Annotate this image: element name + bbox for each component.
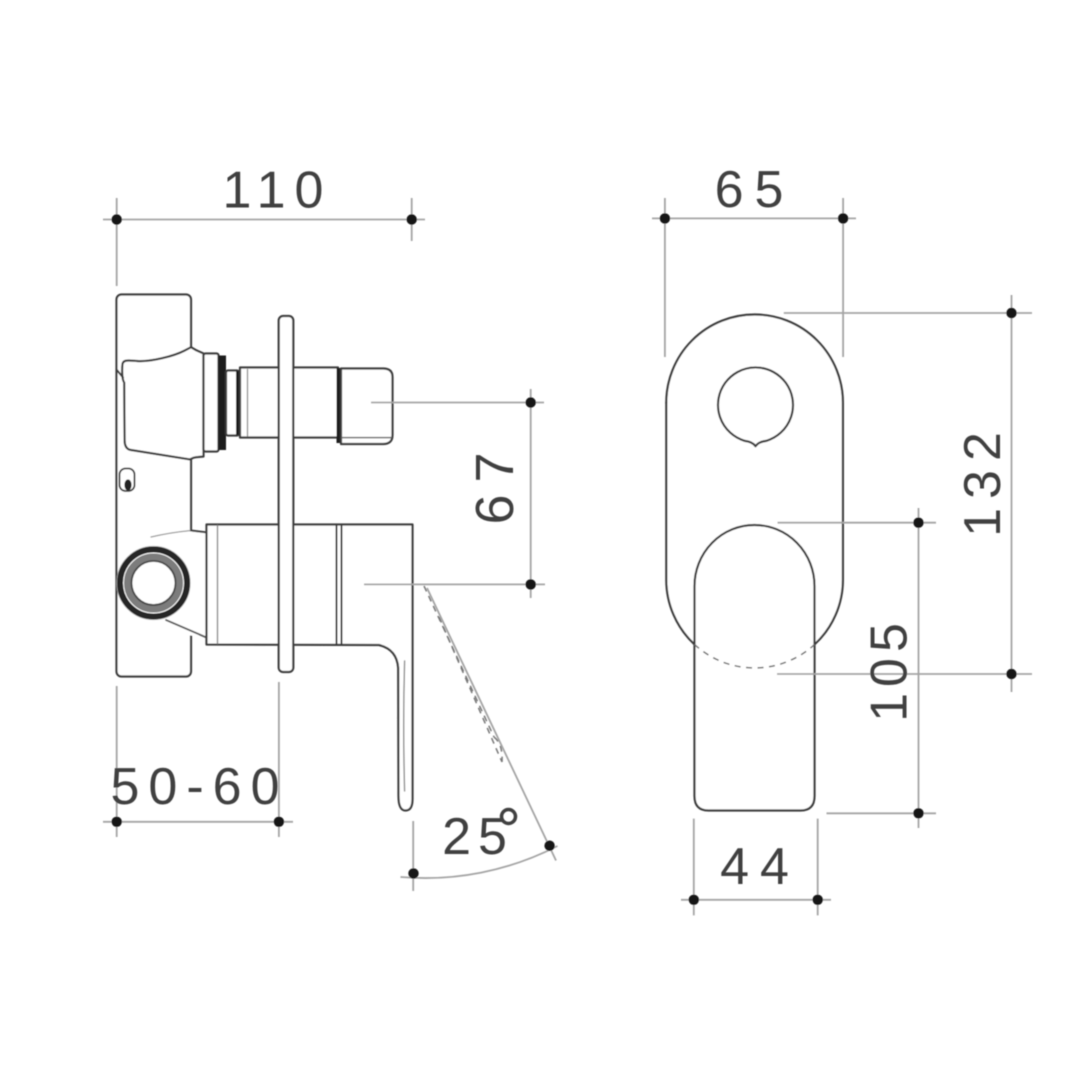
svg-text:65: 65 [715, 161, 795, 219]
svg-text:67: 67 [465, 440, 525, 524]
svg-text:110: 110 [223, 162, 333, 220]
svg-text:44: 44 [720, 838, 800, 896]
svg-text:50-60: 50-60 [111, 758, 289, 816]
svg-text:105: 105 [861, 617, 919, 722]
svg-text:132: 132 [954, 423, 1012, 537]
